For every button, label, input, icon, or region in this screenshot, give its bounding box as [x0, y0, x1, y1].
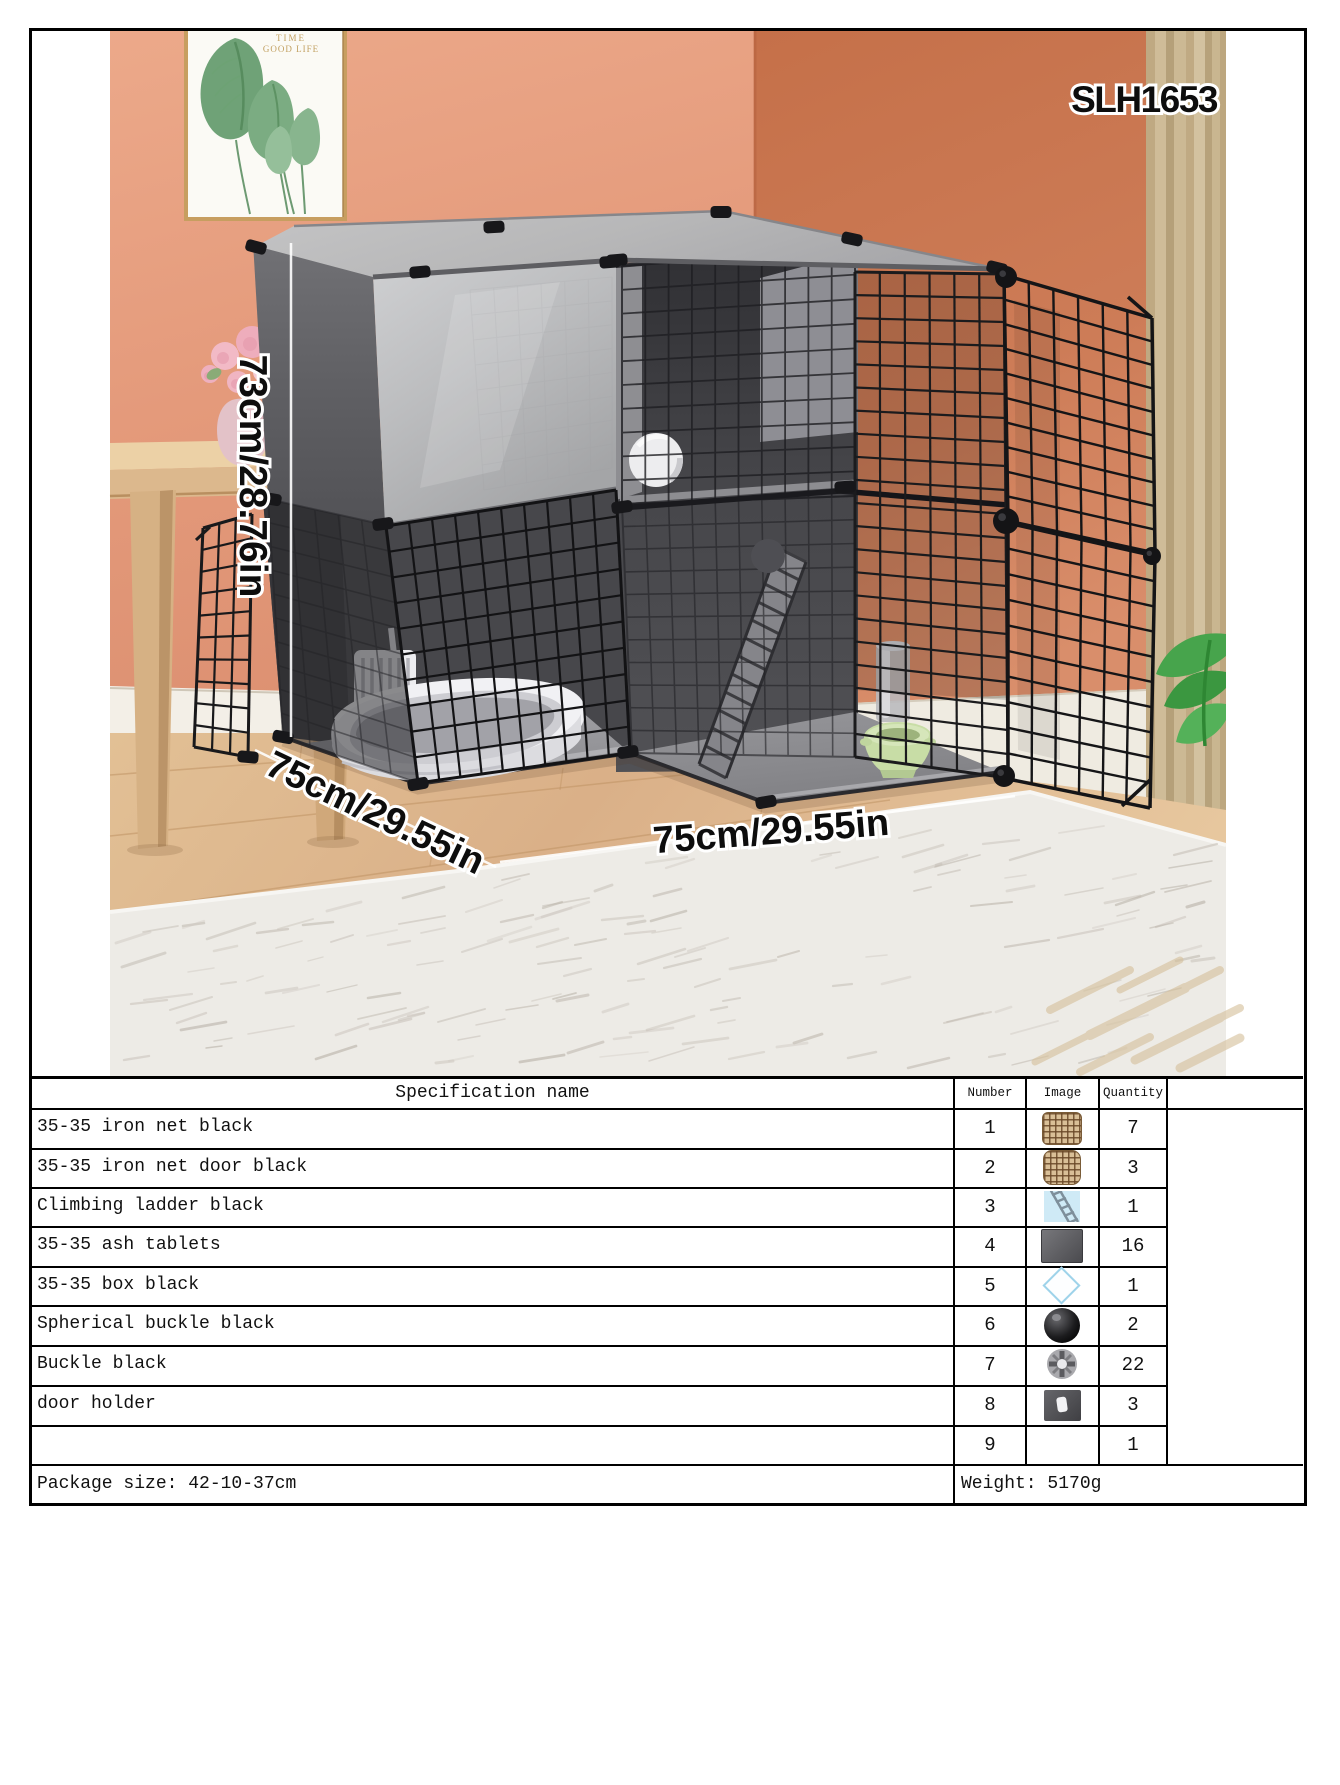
- svg-text:SLH1653: SLH1653: [1071, 79, 1218, 120]
- svg-text:GOOD LIFE: GOOD LIFE: [263, 44, 319, 54]
- svg-text:73cm/28.76in: 73cm/28.76in: [231, 355, 274, 598]
- svg-text:TIME: TIME: [276, 33, 306, 43]
